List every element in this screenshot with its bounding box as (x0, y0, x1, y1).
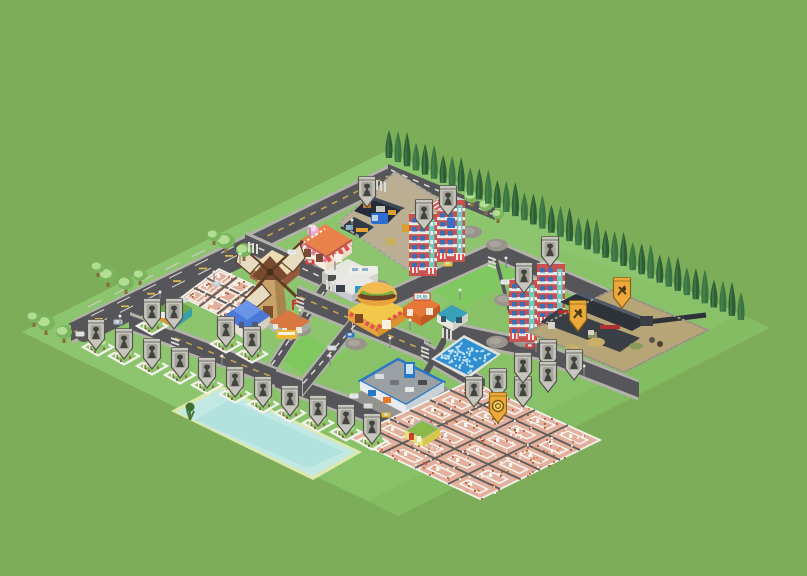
svg-text:PUB: PUB (416, 295, 428, 301)
